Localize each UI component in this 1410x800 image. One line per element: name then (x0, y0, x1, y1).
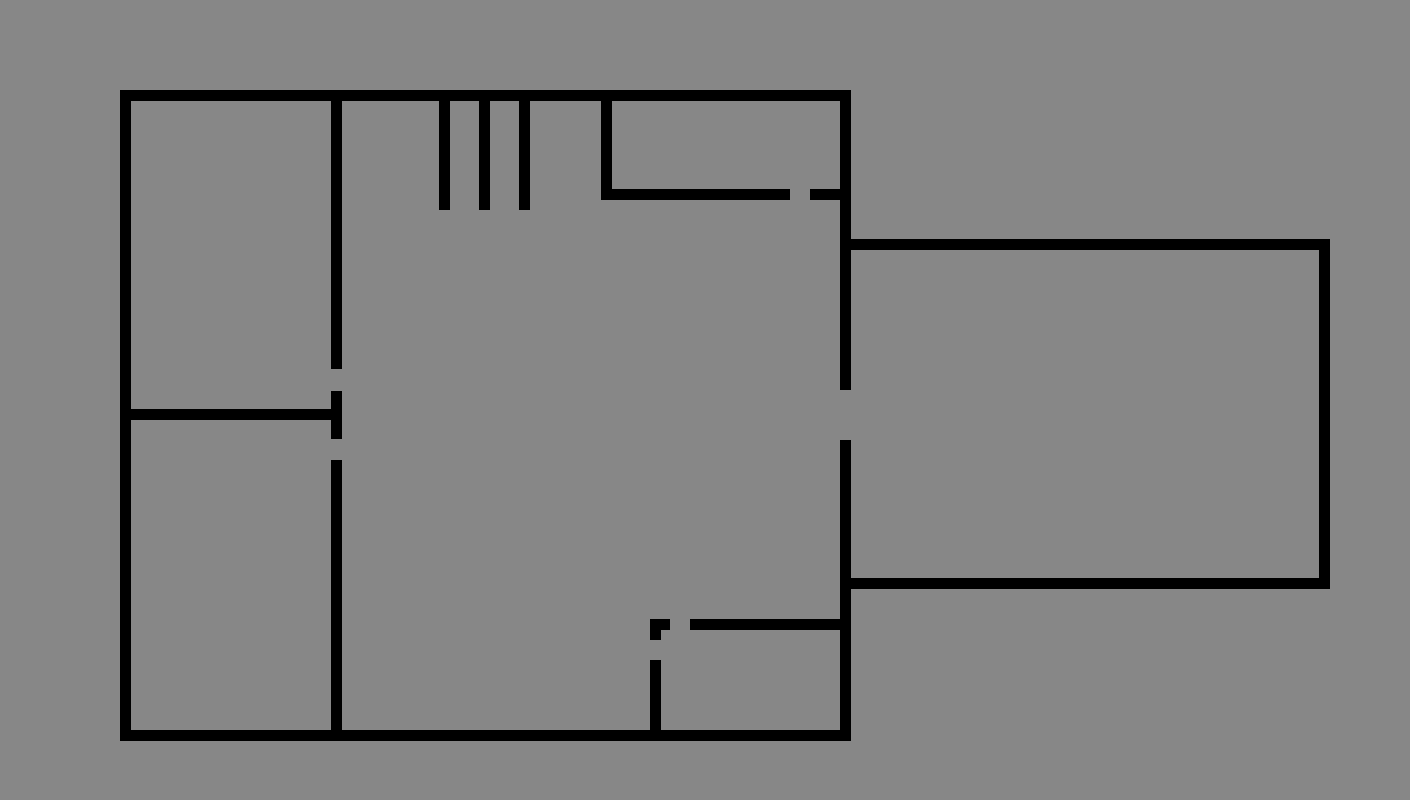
outer-right-wall-lower (840, 440, 851, 741)
small-room-top-wall (690, 619, 851, 630)
interior-vertical-wall-upper (331, 90, 342, 369)
top-right-room-bottom-wall (601, 189, 790, 200)
left-rooms-divider-wall (120, 409, 342, 420)
small-room-left-wall (650, 660, 661, 741)
stair-tick-2 (479, 90, 490, 210)
extension-room-top-wall (851, 239, 1330, 250)
outer-right-wall-upper (840, 90, 851, 390)
extension-room-bottom-wall (851, 578, 1330, 589)
top-right-room-left-wall (601, 90, 612, 200)
floor-plan (0, 0, 1410, 800)
stair-tick-1 (439, 90, 450, 210)
interior-vertical-wall-lower (331, 460, 342, 741)
small-room-corner-stub (650, 619, 661, 640)
stair-tick-3 (519, 90, 530, 210)
outer-bottom-wall (120, 730, 851, 741)
top-right-room-bottom-stub (810, 189, 851, 200)
extension-room-right-wall (1319, 239, 1330, 589)
